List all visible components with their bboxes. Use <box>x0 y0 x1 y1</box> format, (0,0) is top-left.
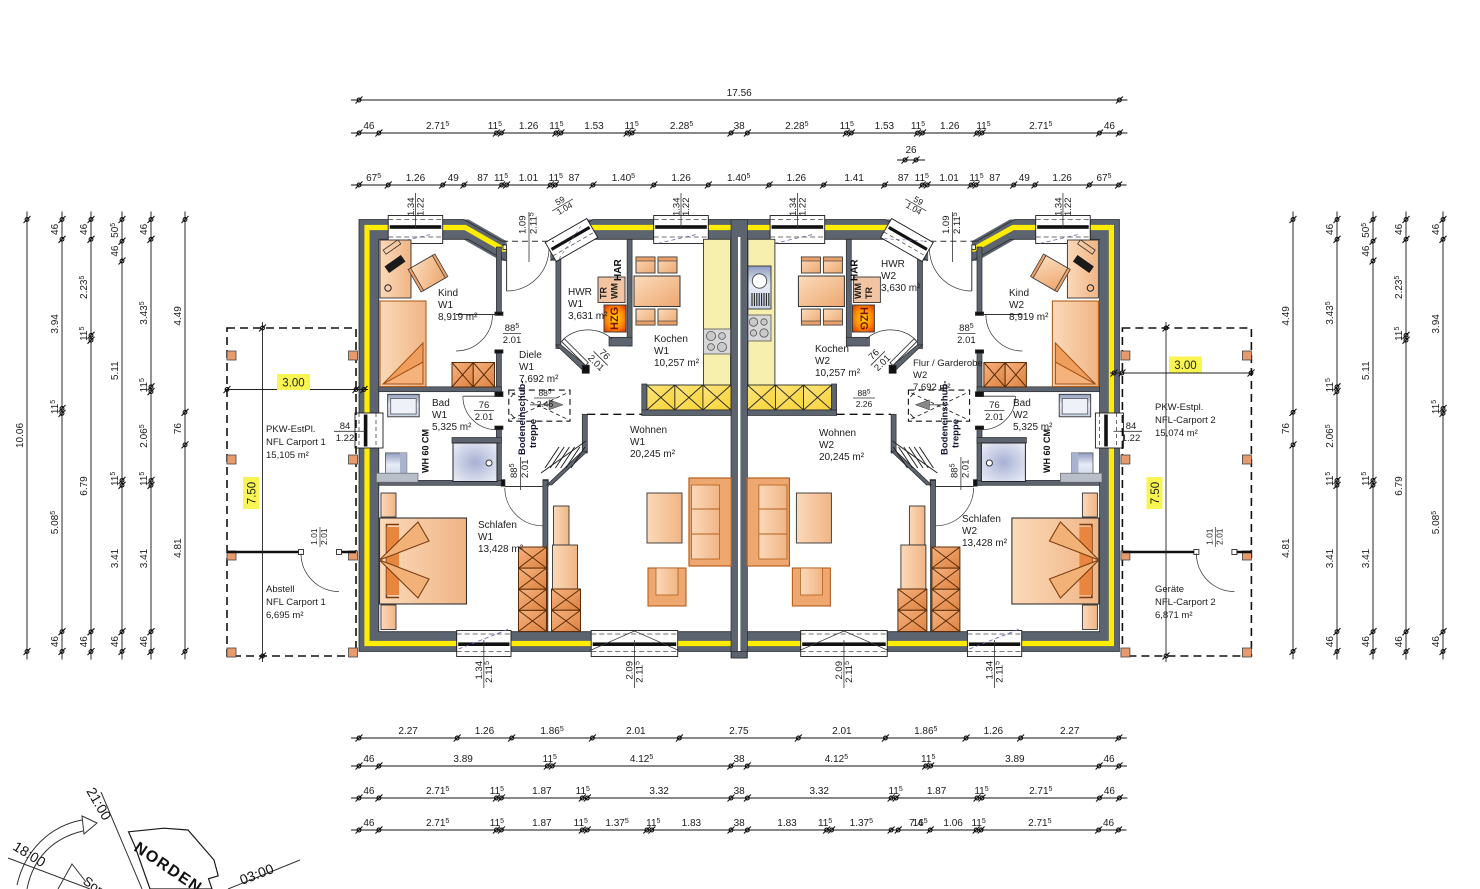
svg-text:PKW-Estpl.: PKW-Estpl. <box>1155 402 1203 413</box>
svg-text:1.26: 1.26 <box>475 726 495 737</box>
svg-text:3.41: 3.41 <box>1361 548 1372 568</box>
svg-text:46: 46 <box>139 223 150 235</box>
svg-text:1.87: 1.87 <box>532 786 552 797</box>
svg-text:TR: TR <box>864 287 874 299</box>
svg-text:1.26: 1.26 <box>1052 173 1072 184</box>
svg-text:W2: W2 <box>913 370 927 381</box>
svg-text:1.26: 1.26 <box>671 173 691 184</box>
svg-text:17.56: 17.56 <box>727 88 752 99</box>
svg-text:84: 84 <box>1126 421 1137 432</box>
svg-text:HZG: HZG <box>857 307 869 330</box>
svg-text:3,631 m²: 3,631 m² <box>568 311 608 322</box>
svg-text:4.49: 4.49 <box>1281 306 1292 326</box>
svg-text:5.11: 5.11 <box>110 361 121 380</box>
svg-text:2.01: 2.01 <box>520 460 531 479</box>
svg-text:W2: W2 <box>819 440 834 451</box>
svg-text:1.06: 1.06 <box>943 818 963 829</box>
svg-text:46: 46 <box>110 245 121 257</box>
svg-text:38: 38 <box>734 818 746 829</box>
svg-text:46: 46 <box>1394 636 1405 648</box>
svg-text:3.94: 3.94 <box>1431 314 1442 334</box>
svg-text:3.00: 3.00 <box>282 378 304 390</box>
svg-text:W1: W1 <box>654 346 669 357</box>
svg-text:NFL Carport 1: NFL Carport 1 <box>266 597 326 608</box>
svg-text:46: 46 <box>363 786 375 797</box>
svg-text:1.26: 1.26 <box>940 121 960 132</box>
svg-text:46: 46 <box>1431 223 1442 235</box>
svg-text:W1: W1 <box>438 300 453 311</box>
svg-text:3.41: 3.41 <box>110 548 121 568</box>
svg-text:1.01: 1.01 <box>519 173 539 184</box>
svg-text:1.41: 1.41 <box>844 173 864 184</box>
svg-text:38: 38 <box>734 121 746 132</box>
svg-text:1.22: 1.22 <box>797 198 808 217</box>
svg-text:Kochen: Kochen <box>815 344 849 355</box>
svg-text:46: 46 <box>1394 223 1405 235</box>
svg-text:treppe: treppe <box>950 419 961 448</box>
svg-text:2.01: 2.01 <box>319 528 329 545</box>
svg-text:10.06: 10.06 <box>15 423 26 448</box>
svg-text:HAR: HAR <box>849 259 860 281</box>
svg-text:Abstell: Abstell <box>266 584 295 595</box>
svg-text:6,695 m²: 6,695 m² <box>266 610 304 621</box>
svg-text:Kind: Kind <box>438 288 458 299</box>
svg-text:2.75: 2.75 <box>729 726 749 737</box>
svg-text:HWR: HWR <box>568 287 592 298</box>
svg-text:46: 46 <box>1325 223 1336 235</box>
svg-text:46: 46 <box>110 636 121 648</box>
svg-text:76: 76 <box>1281 423 1292 435</box>
svg-text:1.26: 1.26 <box>406 173 426 184</box>
svg-text:15,105 m²: 15,105 m² <box>266 450 309 461</box>
svg-text:4.81: 4.81 <box>173 538 184 558</box>
svg-text:W1: W1 <box>519 362 534 373</box>
svg-text:2.46: 2.46 <box>537 399 554 409</box>
svg-text:1.83: 1.83 <box>777 818 797 829</box>
svg-text:7,692 m²: 7,692 m² <box>519 374 559 385</box>
svg-text:5,325 m²: 5,325 m² <box>432 422 472 433</box>
svg-text:2.27: 2.27 <box>398 726 418 737</box>
svg-text:3.32: 3.32 <box>810 786 830 797</box>
svg-text:13,428 m²: 13,428 m² <box>478 544 524 555</box>
svg-text:WM: WM <box>853 283 863 299</box>
svg-text:HZG: HZG <box>609 307 621 330</box>
svg-text:46: 46 <box>1103 754 1115 765</box>
svg-text:3.32: 3.32 <box>649 786 669 797</box>
svg-text:15,074 m²: 15,074 m² <box>1155 428 1198 439</box>
svg-text:38: 38 <box>733 754 745 765</box>
svg-text:87: 87 <box>989 173 1001 184</box>
svg-text:46: 46 <box>1325 636 1336 648</box>
svg-text:W2: W2 <box>962 526 977 537</box>
svg-text:2.01: 2.01 <box>475 412 494 423</box>
svg-text:W1: W1 <box>630 437 645 448</box>
svg-text:2.01: 2.01 <box>1214 528 1224 545</box>
svg-text:WH 60 CM: WH 60 CM <box>1042 429 1052 473</box>
svg-text:1.09: 1.09 <box>518 216 529 235</box>
svg-text:6.79: 6.79 <box>1394 476 1405 496</box>
svg-text:7.50: 7.50 <box>247 482 259 504</box>
svg-text:1.22: 1.22 <box>336 433 355 444</box>
svg-text:2.01: 2.01 <box>957 335 976 346</box>
svg-text:8,919 m²: 8,919 m² <box>438 312 478 323</box>
svg-text:Bad: Bad <box>432 398 450 409</box>
svg-text:4.81: 4.81 <box>1281 538 1292 558</box>
svg-text:2.01: 2.01 <box>832 726 852 737</box>
svg-text:1.53: 1.53 <box>584 121 604 132</box>
svg-text:46: 46 <box>1361 636 1372 648</box>
svg-text:treppe: treppe <box>528 419 539 448</box>
svg-text:2.26: 2.26 <box>856 399 873 409</box>
svg-text:46: 46 <box>1103 818 1115 829</box>
svg-text:7,692 m²: 7,692 m² <box>913 382 951 393</box>
svg-text:38: 38 <box>734 786 746 797</box>
svg-text:Schlafen: Schlafen <box>962 514 1001 525</box>
svg-text:3.94: 3.94 <box>50 314 61 334</box>
svg-text:6,871 m²: 6,871 m² <box>1155 610 1193 621</box>
svg-text:1.01: 1.01 <box>1204 528 1214 545</box>
svg-text:1.87: 1.87 <box>532 818 552 829</box>
svg-text:1.22: 1.22 <box>681 198 692 217</box>
svg-text:1.22: 1.22 <box>415 198 426 217</box>
svg-text:WH 60 CM: WH 60 CM <box>421 429 431 473</box>
svg-text:1.26: 1.26 <box>984 726 1004 737</box>
svg-text:46: 46 <box>1104 786 1116 797</box>
svg-text:7.50: 7.50 <box>1150 482 1162 504</box>
svg-text:2.01: 2.01 <box>985 412 1004 423</box>
svg-text:W2: W2 <box>1013 410 1028 421</box>
svg-text:Geräte: Geräte <box>1155 584 1184 595</box>
svg-text:PKW-EstPl.: PKW-EstPl. <box>266 424 315 435</box>
svg-text:46: 46 <box>363 754 375 765</box>
svg-text:46: 46 <box>79 223 90 235</box>
svg-text:20,245 m²: 20,245 m² <box>630 449 676 460</box>
svg-text:6.79: 6.79 <box>79 476 90 496</box>
svg-text:2.01: 2.01 <box>960 460 971 479</box>
svg-text:3,630 m²: 3,630 m² <box>881 283 921 294</box>
svg-text:49: 49 <box>1019 173 1031 184</box>
svg-text:46: 46 <box>139 636 150 648</box>
svg-text:5,325 m²: 5,325 m² <box>1013 422 1053 433</box>
svg-text:W2: W2 <box>815 356 830 367</box>
svg-text:46: 46 <box>79 636 90 648</box>
svg-text:1.22: 1.22 <box>1122 433 1141 444</box>
svg-text:4.49: 4.49 <box>173 306 184 326</box>
svg-text:W1: W1 <box>432 410 447 421</box>
svg-text:3.41: 3.41 <box>1325 548 1336 568</box>
svg-text:NFL-Carport 2: NFL-Carport 2 <box>1155 597 1216 608</box>
svg-text:1.09: 1.09 <box>941 216 952 235</box>
svg-text:3.00: 3.00 <box>1174 360 1196 372</box>
svg-text:46: 46 <box>1361 245 1372 257</box>
svg-text:10,257 m²: 10,257 m² <box>815 368 861 379</box>
svg-text:46: 46 <box>1431 636 1442 648</box>
svg-text:1.83: 1.83 <box>682 818 702 829</box>
svg-text:Wohnen: Wohnen <box>819 428 856 439</box>
svg-text:2.01: 2.01 <box>626 726 646 737</box>
svg-text:WM: WM <box>610 283 620 299</box>
svg-text:2.01: 2.01 <box>503 335 522 346</box>
svg-text:1.26: 1.26 <box>519 121 539 132</box>
svg-text:2.27: 2.27 <box>1060 726 1080 737</box>
svg-text:5.11: 5.11 <box>1361 361 1372 380</box>
svg-text:Kind: Kind <box>1009 288 1029 299</box>
svg-text:1.01: 1.01 <box>309 528 319 545</box>
svg-text:10,257 m²: 10,257 m² <box>654 358 700 369</box>
svg-text:87: 87 <box>569 173 581 184</box>
svg-text:84: 84 <box>340 421 351 432</box>
svg-text:3.41: 3.41 <box>139 548 150 568</box>
svg-text:HWR: HWR <box>881 259 905 270</box>
svg-text:8,919 m²: 8,919 m² <box>1009 312 1049 323</box>
svg-text:Kochen: Kochen <box>654 334 688 345</box>
svg-text:87: 87 <box>898 173 910 184</box>
svg-text:W2: W2 <box>881 271 896 282</box>
svg-text:1.01: 1.01 <box>939 173 959 184</box>
svg-text:7.4: 7.4 <box>909 818 923 829</box>
svg-text:1.53: 1.53 <box>875 121 895 132</box>
svg-text:1.26: 1.26 <box>787 173 807 184</box>
svg-text:Wohnen: Wohnen <box>630 425 667 436</box>
svg-text:49: 49 <box>448 173 460 184</box>
svg-text:76: 76 <box>989 400 1000 411</box>
svg-text:87: 87 <box>477 173 489 184</box>
svg-text:76: 76 <box>479 400 490 411</box>
svg-text:3.89: 3.89 <box>1005 754 1025 765</box>
svg-text:Schlafen: Schlafen <box>478 520 517 531</box>
svg-text:46: 46 <box>50 636 61 648</box>
svg-text:Diele: Diele <box>519 350 542 361</box>
svg-text:HAR: HAR <box>613 259 624 281</box>
svg-text:Bodeneinschub-: Bodeneinschub- <box>517 381 528 455</box>
svg-text:76: 76 <box>173 423 184 435</box>
svg-text:46: 46 <box>363 121 375 132</box>
svg-text:W1: W1 <box>478 532 493 543</box>
svg-text:1.22: 1.22 <box>1063 198 1074 217</box>
svg-text:3.89: 3.89 <box>453 754 473 765</box>
svg-text:46: 46 <box>363 818 375 829</box>
svg-text:W1: W1 <box>568 299 583 310</box>
svg-text:Flur / Garderobe: Flur / Garderobe <box>913 358 983 369</box>
svg-text:NFL-Carport 2: NFL-Carport 2 <box>1155 415 1216 426</box>
svg-text:1.87: 1.87 <box>927 786 947 797</box>
svg-text:W2: W2 <box>1009 300 1024 311</box>
svg-text:Bad: Bad <box>1013 398 1031 409</box>
svg-text:NFL Carport 1: NFL Carport 1 <box>266 437 326 448</box>
svg-text:20,245 m²: 20,245 m² <box>819 452 865 463</box>
svg-text:13,428 m²: 13,428 m² <box>962 538 1008 549</box>
svg-text:46: 46 <box>1104 121 1116 132</box>
svg-text:TR: TR <box>599 287 609 299</box>
svg-text:46: 46 <box>50 223 61 235</box>
svg-text:26: 26 <box>905 145 917 156</box>
